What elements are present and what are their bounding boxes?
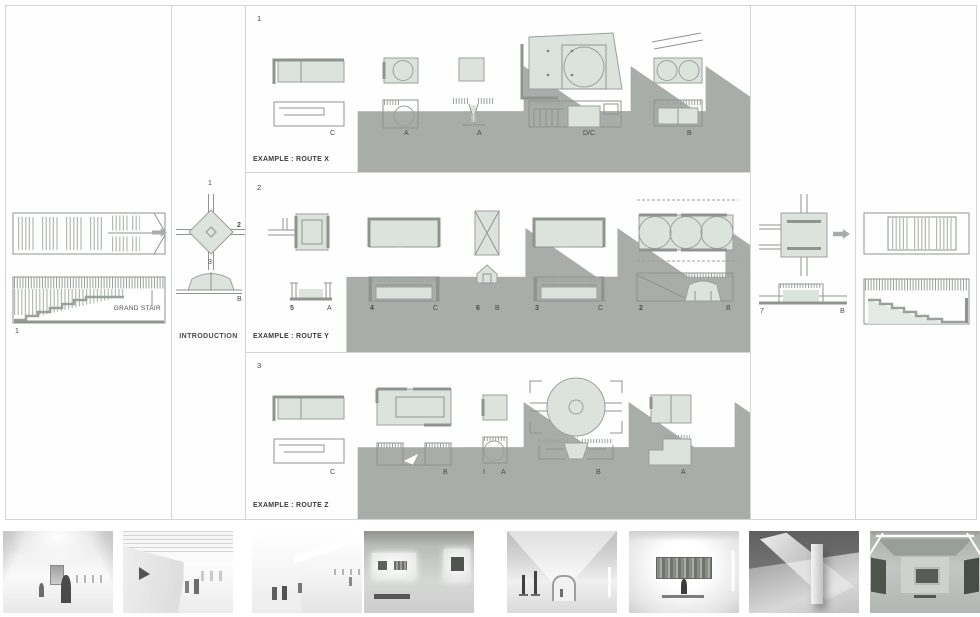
thumb7-slab-column — [811, 544, 823, 604]
intro-arm-3: 3 — [208, 259, 212, 266]
intro-section-letter: B — [237, 296, 242, 303]
route-x-step-1-letter: C — [330, 130, 335, 137]
thumb6-ceiling — [629, 531, 739, 541]
route-y-step-5-num: 2 — [639, 305, 643, 312]
route-y-title: EXAMPLE : ROUTE Y — [253, 333, 329, 340]
route-x-panel: 1 C A A D/C B EXAMPLE : ROUTE X — [245, 5, 751, 173]
route-y-step-4-letter: C — [598, 305, 603, 312]
render-thumbnail-6 — [629, 531, 739, 613]
introduction-panel: 1 2 3 B INTRODUCTION — [171, 5, 246, 520]
route-y-number: 2 — [257, 183, 261, 192]
thumb1-artwork-row — [76, 575, 108, 583]
thumb5-figure — [560, 589, 563, 597]
route-y-step-2-letter: C — [433, 305, 438, 312]
route-y-drawings — [246, 173, 750, 352]
thumb2-figure — [185, 581, 189, 593]
route-x-step-4-letter: D/C — [583, 130, 595, 137]
thumb5-plinth-2 — [531, 594, 540, 596]
route-z-step-4-letter: B — [596, 469, 601, 476]
exit-stair-drawing — [856, 6, 976, 519]
grand-stair-drawing — [6, 6, 171, 519]
thumb8-left-painting — [871, 558, 886, 595]
thumb8-bench — [914, 595, 936, 598]
exit-number: 7 — [760, 308, 764, 315]
route-y-step-4-num: 3 — [535, 305, 539, 312]
thumb3-figure — [298, 583, 302, 593]
thumb5-light-slit — [608, 567, 611, 597]
thumb8-cove-light — [876, 535, 974, 537]
route-z-step-3-letter: A — [501, 469, 506, 476]
thumb2-louvers — [123, 531, 233, 553]
thumb6-painting — [656, 557, 712, 579]
render-thumbnail-7 — [749, 531, 859, 613]
thumb4-bench — [374, 594, 410, 599]
grand-stair-caption: GRAND STAIR — [114, 306, 161, 313]
route-z-step-2-letter: B — [443, 469, 448, 476]
route-z-title: EXAMPLE : ROUTE Z — [253, 502, 329, 509]
render-thumbnail-4 — [364, 531, 474, 613]
thumb4-painting — [378, 561, 387, 570]
thumb6-light-slit — [732, 551, 734, 591]
thumb5-sculpture — [522, 575, 525, 595]
route-z-step-5-letter: A — [681, 469, 686, 476]
exit-stair-panel — [855, 5, 977, 520]
route-x-step-5-letter: B — [687, 130, 692, 137]
thumb4-painting-2 — [394, 561, 407, 570]
route-z-panel: 3 C B I A B A EXAMPLE : ROUTE Z — [245, 352, 751, 520]
thumb1-figure-2 — [61, 575, 71, 603]
route-y-step-2-num: 4 — [370, 305, 374, 312]
route-x-drawings — [246, 6, 750, 172]
route-y-step-3-letter: B — [495, 305, 500, 312]
render-thumbnail-8 — [870, 531, 980, 613]
thumb8-center-painting — [914, 567, 940, 585]
thumb6-figure — [681, 579, 687, 594]
intro-title: INTRODUCTION — [172, 333, 245, 340]
route-z-step-1-letter: C — [330, 469, 335, 476]
exit-room-panel: 7 B — [750, 5, 856, 520]
thumb4-painting-3 — [451, 557, 464, 571]
render-thumbnail-1 — [3, 531, 113, 613]
thumb1-figure — [39, 583, 44, 597]
thumb5-plinth — [519, 594, 528, 596]
thumb2-frames — [201, 571, 225, 581]
route-y-step-5-letter: B — [726, 305, 731, 312]
thumb3-figure-3 — [282, 586, 287, 600]
thumb5-arch-end — [552, 575, 576, 601]
route-y-panel: 2 5 A 4 C 6 B 3 C 2 B EXAMPLE : ROUTE Y — [245, 172, 751, 353]
thumb3-figure-4 — [349, 577, 352, 586]
exit-section-letter: B — [840, 308, 845, 315]
thumb6-bench — [662, 595, 704, 598]
route-z-step-3-num: I — [483, 469, 485, 476]
render-thumbnail-2 — [123, 531, 233, 613]
render-thumbnail-3 — [252, 531, 362, 613]
presentation-board: 1 GRAND STAIR 1 2 3 B INTRODUCTION — [0, 0, 980, 617]
thumb8-right-painting — [964, 558, 979, 595]
route-z-drawings — [246, 353, 750, 519]
route-y-step-1-letter: A — [327, 305, 332, 312]
thumb3-frames — [334, 569, 360, 575]
grand-stair-number: 1 — [15, 328, 19, 335]
route-y-step-1-num: 5 — [290, 305, 294, 312]
route-z-number: 3 — [257, 361, 261, 370]
render-thumbnail-5 — [507, 531, 617, 613]
route-x-number: 1 — [257, 14, 261, 23]
exit-room-drawing — [751, 6, 855, 519]
intro-arm-1: 1 — [208, 180, 212, 187]
route-x-title: EXAMPLE : ROUTE X — [253, 156, 329, 163]
thumb5-sculpture-2 — [534, 571, 537, 595]
route-y-step-3-num: 6 — [476, 305, 480, 312]
route-x-step-3-letter: A — [477, 130, 482, 137]
route-x-step-2-letter: A — [404, 130, 409, 137]
thumb2-figure-2 — [194, 579, 199, 594]
grand-stair-panel: 1 GRAND STAIR — [5, 5, 172, 520]
thumb3-figure-2 — [272, 587, 277, 600]
intro-arm-2: 2 — [237, 222, 241, 229]
